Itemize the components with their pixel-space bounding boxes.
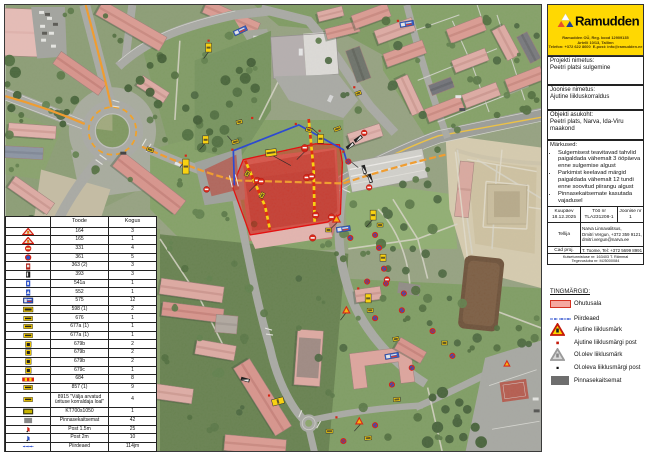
svg-text:Ramudden: Ramudden [575,14,640,28]
